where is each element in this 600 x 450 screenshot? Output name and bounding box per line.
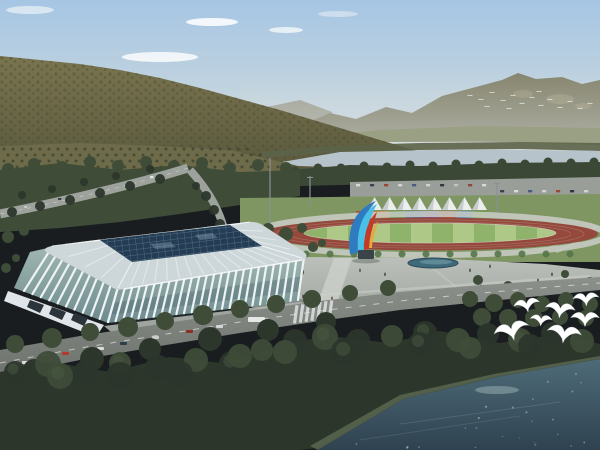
- orchard-tree: [30, 148, 33, 151]
- pedestrian: [384, 273, 385, 276]
- orchard-tree: [219, 148, 222, 151]
- orchard-tree: [111, 160, 114, 163]
- tree: [590, 158, 599, 167]
- tree: [267, 295, 285, 313]
- tree: [360, 162, 369, 171]
- tree: [567, 159, 576, 168]
- tree-crown-highlight: [412, 335, 424, 347]
- tree: [406, 161, 415, 170]
- tree: [42, 328, 62, 348]
- tree: [48, 185, 56, 193]
- pedestrian: [469, 269, 470, 272]
- orchard-tree: [264, 160, 267, 163]
- tree: [65, 195, 75, 205]
- sparkle: [418, 446, 420, 448]
- orchard-tree: [70, 154, 73, 157]
- orchard-tree: [129, 148, 132, 151]
- parked-car: [584, 190, 588, 192]
- orchard-tree: [97, 154, 100, 157]
- tree: [485, 294, 503, 312]
- sparkle: [475, 447, 477, 449]
- orchard-tree: [156, 160, 159, 163]
- tree: [495, 251, 502, 258]
- tree: [12, 254, 20, 262]
- car: [216, 325, 223, 328]
- tree: [56, 161, 68, 173]
- tree-crown: [73, 361, 97, 385]
- orchard-tree: [106, 154, 109, 157]
- orchard-tree: [3, 160, 6, 163]
- tree: [146, 165, 154, 173]
- orchard-tree: [66, 148, 69, 151]
- parked-car: [454, 184, 458, 186]
- orchard-tree: [39, 148, 42, 151]
- orchard-tree: [192, 160, 195, 163]
- car: [62, 352, 69, 355]
- orchard-tree: [43, 154, 46, 157]
- orchard-tree: [178, 154, 181, 157]
- cloud: [186, 18, 238, 26]
- tree: [35, 201, 45, 211]
- orchard-tree: [250, 154, 253, 157]
- parked-car: [570, 190, 574, 192]
- tree: [28, 158, 40, 170]
- tree: [2, 231, 14, 243]
- orchard-tree: [102, 148, 105, 151]
- sparkle: [571, 445, 572, 446]
- tree-crown-highlight: [8, 364, 19, 375]
- orchard-tree: [156, 148, 159, 151]
- orchard-tree: [228, 148, 231, 151]
- tree: [498, 159, 507, 168]
- tree: [7, 207, 17, 217]
- orchard-tree: [232, 154, 235, 157]
- sparkle: [485, 406, 487, 408]
- orchard-tree: [79, 154, 82, 157]
- parked-car: [528, 190, 532, 192]
- orchard-tree: [210, 160, 213, 163]
- tree-crown: [477, 323, 499, 345]
- tree: [447, 251, 454, 258]
- orchard-tree: [246, 160, 249, 163]
- tree: [125, 181, 135, 191]
- orchard-tree: [160, 154, 163, 157]
- tree: [118, 317, 138, 337]
- tree: [280, 162, 292, 174]
- orchard-tree: [102, 160, 105, 163]
- cloud: [122, 52, 198, 62]
- tree: [327, 251, 334, 258]
- tree: [318, 239, 326, 247]
- tree-crown: [145, 355, 171, 381]
- orchard-tree: [61, 154, 64, 157]
- orchard-tree: [223, 154, 226, 157]
- orchard-tree: [187, 154, 190, 157]
- tree: [297, 223, 307, 233]
- tree-crown: [518, 334, 542, 358]
- tree-crown: [106, 362, 134, 390]
- orchard-tree: [12, 148, 15, 151]
- tree-crown: [381, 325, 403, 347]
- sparkle: [519, 437, 520, 438]
- orchard-tree: [93, 148, 96, 151]
- parked-car: [468, 184, 472, 186]
- tree: [19, 226, 29, 236]
- tree-crown: [459, 337, 481, 359]
- sparkle: [355, 443, 357, 445]
- tree-crown: [273, 340, 297, 364]
- parked-car: [398, 184, 402, 186]
- orchard-tree: [52, 154, 55, 157]
- tree: [81, 323, 99, 341]
- orchard-tree: [241, 154, 244, 157]
- orchard-tree: [259, 154, 262, 157]
- orchard-tree: [75, 148, 78, 151]
- orchard-tree: [210, 148, 213, 151]
- tree: [471, 251, 478, 258]
- sparkle: [583, 442, 585, 444]
- tree: [252, 159, 264, 171]
- parked-car: [426, 184, 430, 186]
- sparkle: [552, 419, 554, 421]
- orchard-tree: [151, 154, 154, 157]
- orchard-tree: [246, 148, 249, 151]
- tree: [337, 164, 346, 173]
- tree: [156, 312, 174, 330]
- orchard-tree: [57, 148, 60, 151]
- sparkle: [478, 417, 480, 419]
- tree: [423, 251, 430, 258]
- tree: [112, 160, 124, 172]
- orchard-tree: [34, 154, 37, 157]
- orchard-tree: [192, 148, 195, 151]
- orchard-tree: [165, 160, 168, 163]
- orchard-tree: [183, 160, 186, 163]
- orchard-tree: [3, 148, 6, 151]
- sparkle: [580, 382, 581, 383]
- sparkle: [465, 427, 466, 428]
- sparkle: [525, 411, 527, 413]
- tree: [18, 191, 26, 199]
- orchard-tree: [133, 154, 136, 157]
- car: [24, 206, 27, 208]
- sparkle: [534, 444, 536, 446]
- sparkle: [406, 446, 408, 448]
- orchard-tree: [25, 154, 28, 157]
- pedestrian: [359, 269, 360, 272]
- tree: [201, 191, 211, 201]
- cloud: [318, 11, 358, 17]
- tree: [380, 280, 396, 296]
- orchard-tree: [205, 154, 208, 157]
- orchard-tree: [66, 160, 69, 163]
- orchard-tree: [115, 154, 118, 157]
- parked-car: [500, 190, 504, 192]
- aerial-rendering-stadium-complex: [0, 0, 600, 450]
- parked-car: [514, 190, 518, 192]
- orchard-tree: [75, 160, 78, 163]
- sparkle: [502, 436, 503, 437]
- parked-car: [384, 184, 388, 186]
- tree-crown: [228, 344, 252, 368]
- scene-canvas: [0, 0, 600, 450]
- water-reflection: [475, 386, 519, 394]
- car: [58, 198, 61, 200]
- tree: [257, 319, 279, 341]
- tree: [544, 158, 553, 167]
- orchard-tree: [165, 148, 168, 151]
- orchard-tree: [111, 148, 114, 151]
- tree: [375, 251, 382, 258]
- tree: [192, 182, 200, 190]
- orchard-tree: [201, 148, 204, 151]
- parked-car: [482, 184, 486, 186]
- tree: [462, 291, 478, 307]
- pond-reflection: [420, 260, 452, 265]
- orchard-tree: [169, 154, 172, 157]
- sculpture-pedestal: [358, 250, 374, 259]
- orchard-tree: [196, 154, 199, 157]
- tree: [224, 162, 236, 174]
- orchard-tree: [133, 166, 136, 169]
- orchard-tree: [250, 166, 253, 169]
- parked-car: [412, 184, 416, 186]
- tree-crown-highlight: [52, 367, 65, 380]
- pedestrian: [331, 297, 332, 300]
- orchard-tree: [106, 166, 109, 169]
- tree: [567, 251, 574, 258]
- orchard-tree: [214, 154, 217, 157]
- tree: [198, 327, 222, 351]
- tree: [303, 290, 321, 308]
- sparkle: [532, 398, 534, 400]
- tree: [209, 205, 219, 215]
- tree: [473, 275, 483, 285]
- orchard-tree: [16, 154, 19, 157]
- parked-car: [542, 190, 546, 192]
- tree-crown-highlight: [317, 328, 330, 341]
- tree: [543, 251, 550, 258]
- tree: [561, 270, 569, 278]
- orchard-tree: [277, 166, 280, 169]
- sparkle: [534, 442, 535, 443]
- tree: [2, 163, 14, 175]
- sparkle: [557, 433, 559, 435]
- orchard-tree: [174, 148, 177, 151]
- tree: [95, 188, 105, 198]
- sparkle: [547, 381, 549, 383]
- orchard-tree: [237, 160, 240, 163]
- tree-crown-highlight: [336, 342, 350, 356]
- orchard-tree: [147, 148, 150, 151]
- orchard-tree: [237, 148, 240, 151]
- orchard-tree: [48, 160, 51, 163]
- tree: [521, 160, 530, 169]
- pedestrian: [489, 265, 490, 268]
- orchard-tree: [142, 154, 145, 157]
- sparkle: [512, 407, 514, 409]
- parked-car: [440, 184, 444, 186]
- orchard-tree: [219, 160, 222, 163]
- tree: [519, 251, 526, 258]
- tree-crown: [167, 361, 193, 387]
- tree-crown: [251, 339, 273, 361]
- tree: [155, 174, 165, 184]
- orchard-tree: [12, 160, 15, 163]
- sparkle: [571, 390, 573, 392]
- cloud: [269, 27, 303, 33]
- tree: [399, 251, 406, 258]
- orchard-tree: [21, 160, 24, 163]
- orchard-tree: [183, 148, 186, 151]
- tree: [475, 161, 484, 170]
- sparkle: [575, 373, 577, 375]
- car: [120, 342, 127, 345]
- tree: [342, 285, 358, 301]
- parked-car: [556, 190, 560, 192]
- tree: [84, 156, 96, 168]
- pedestrian: [551, 273, 552, 276]
- orchard-tree: [48, 148, 51, 151]
- cloud: [6, 6, 54, 14]
- athletics-track: [254, 214, 600, 255]
- tree: [196, 157, 208, 169]
- tree: [429, 162, 438, 171]
- sculpture-shadow: [352, 259, 380, 264]
- parked-car: [356, 184, 360, 186]
- tree: [80, 178, 88, 186]
- tree: [308, 242, 318, 252]
- parked-car: [370, 184, 374, 186]
- car: [186, 330, 193, 333]
- orchard-tree: [124, 154, 127, 157]
- orchard-tree: [214, 166, 217, 169]
- tree: [231, 300, 249, 318]
- sparkle: [531, 420, 533, 422]
- orchard-tree: [241, 166, 244, 169]
- car: [150, 176, 153, 178]
- tree: [1, 263, 11, 273]
- tree: [452, 160, 461, 169]
- orchard-tree: [138, 148, 141, 151]
- sparkle: [475, 427, 477, 429]
- tree: [193, 305, 213, 325]
- tree: [314, 164, 323, 173]
- orchard-tree: [120, 148, 123, 151]
- tree: [112, 172, 120, 180]
- orchard-tree: [21, 148, 24, 151]
- tree: [383, 163, 392, 172]
- orchard-tree: [129, 160, 132, 163]
- orchard-tree: [84, 148, 87, 151]
- orchard-tree: [7, 154, 10, 157]
- tree: [6, 335, 24, 353]
